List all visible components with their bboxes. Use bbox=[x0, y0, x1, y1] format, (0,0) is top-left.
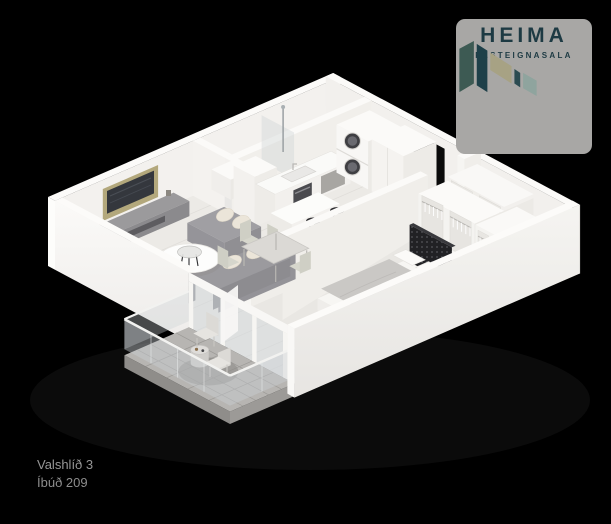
agency-logo-card: HEIMA FASTEIGNASALA bbox=[456, 19, 592, 154]
washer-door bbox=[344, 159, 360, 175]
heima-logo-icon bbox=[456, 41, 540, 97]
property-name: Valshlíð 3 bbox=[37, 456, 93, 474]
property-label: Valshlíð 3 Íbúð 209 bbox=[37, 456, 93, 492]
real-estate-floorplan-image: HEIMA FASTEIGNASALA Valshlíð 3 Íbúð 209 bbox=[0, 0, 611, 524]
property-unit: Íbúð 209 bbox=[37, 474, 93, 492]
dryer-door bbox=[344, 133, 360, 149]
decor-object bbox=[166, 190, 171, 196]
